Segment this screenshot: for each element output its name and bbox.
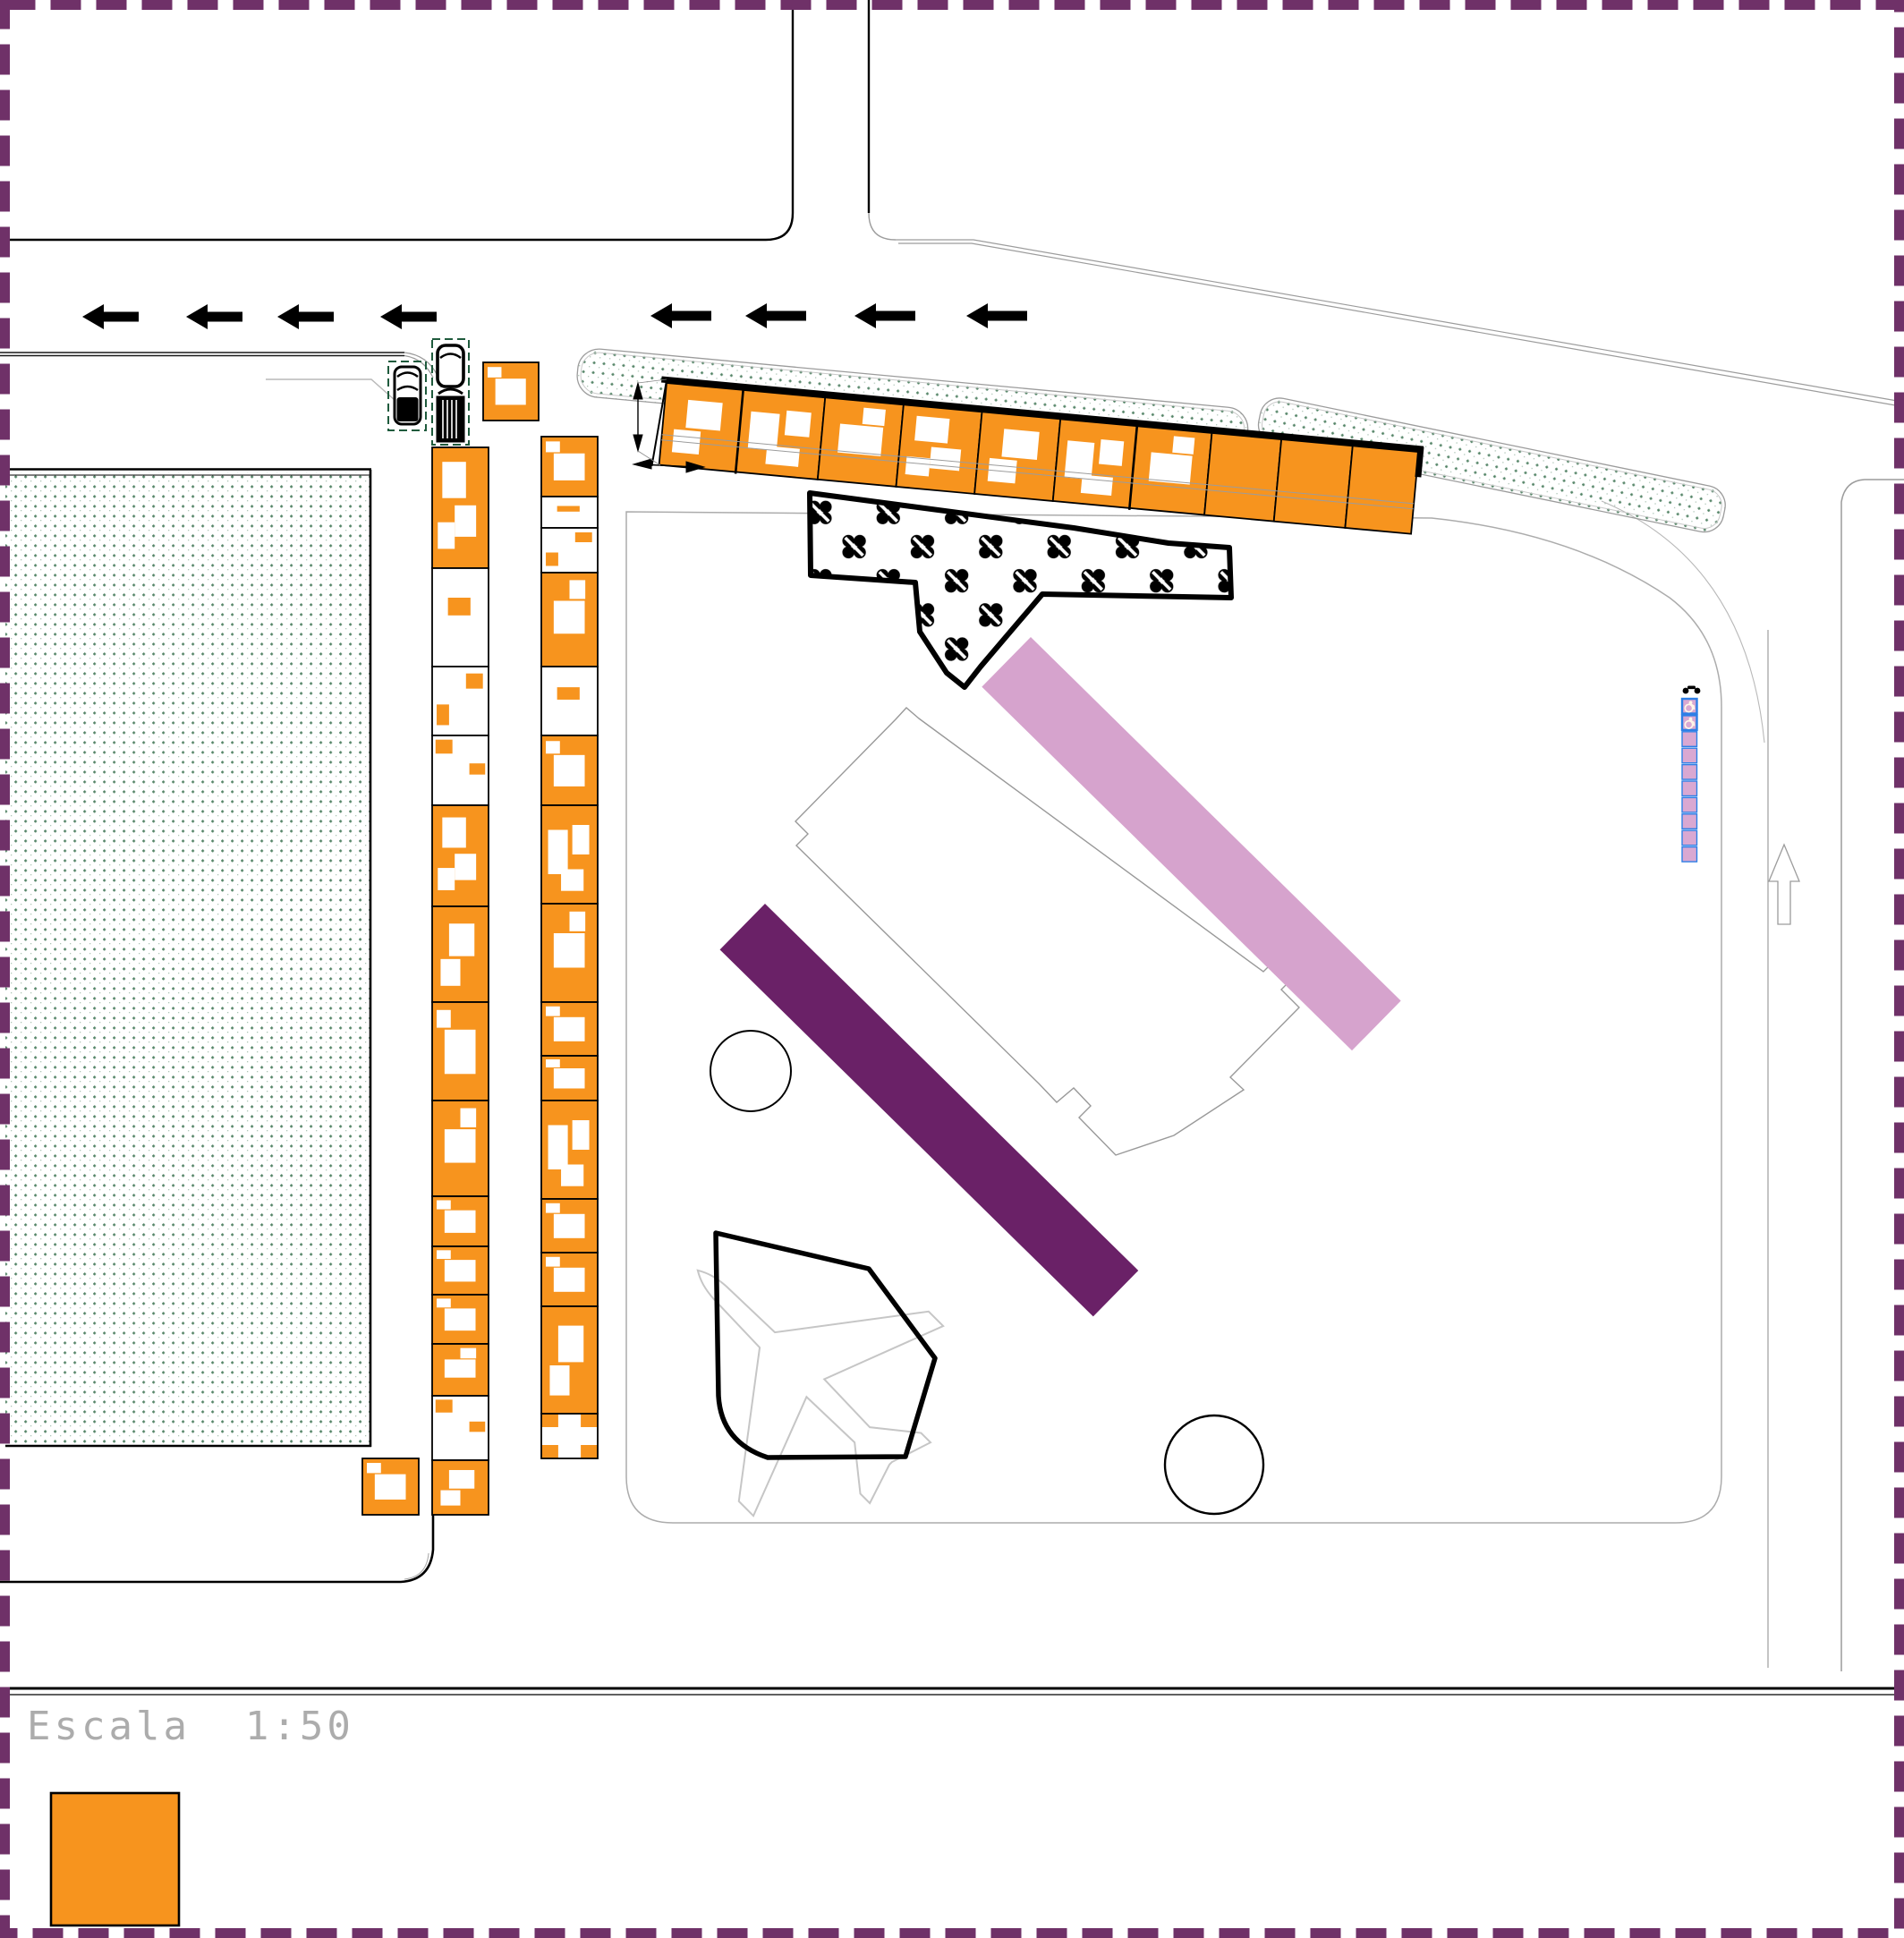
site-plan-page: Escala 1:50 [0,0,1904,1938]
southwest-corner-lines [0,1515,433,1582]
parking-space [1682,748,1697,763]
stall-block [432,805,489,906]
scale-label: Escala 1:50 [27,1704,354,1749]
parking-space [1682,830,1697,846]
stall-block [541,1056,598,1101]
stall-block [818,397,904,487]
market-stalls [362,362,598,1515]
scale-separator [0,1688,1904,1695]
stall-block [432,1396,489,1460]
accessible-parking-space [1682,699,1697,714]
parking-space [1682,814,1697,829]
parking-spaces [1682,699,1697,862]
stall-block [432,667,489,735]
stall-block [432,1246,489,1295]
stall-block [1345,446,1418,533]
stall-block [735,390,825,480]
purple-wing-bar [720,904,1139,1316]
lane-arrow-up [1769,845,1799,924]
truck-icon [432,339,469,445]
stall-block [1053,419,1137,507]
site-plan-canvas: Escala 1:50 [0,0,1904,1938]
plaza-field [2,470,371,1448]
parking-space [1682,781,1697,796]
stall-block [362,1458,419,1515]
stall-block [541,1101,598,1199]
stall-block [1129,426,1211,514]
parking-space [1682,765,1697,780]
left-arrow [380,304,437,329]
parking-space [1682,797,1697,812]
parking-space [1682,847,1697,863]
circle-feature-1 [710,1031,791,1111]
left-arrow [854,303,915,328]
stall-block [659,383,744,472]
stall-block [541,497,598,528]
stall-block [483,362,539,421]
left-arrow [82,304,139,329]
stall-block [432,1460,489,1515]
scooter-icon [1683,686,1701,694]
right-road-edges [1602,480,1904,1671]
circle-feature-2 [1165,1415,1263,1514]
left-arrow [277,304,334,329]
stall-block [541,1253,598,1306]
stall-block [432,568,489,667]
stall-block [541,805,598,904]
stall-block [541,667,598,735]
stall-block [896,404,982,494]
stall-block [541,904,598,1002]
stall-block [432,906,489,1002]
parking-space [1682,732,1697,747]
stall-block [432,1002,489,1101]
stall-block [1204,433,1281,522]
traffic-arrows [82,303,1027,329]
pink-wing-bar [982,637,1400,1050]
stall-block [541,528,598,573]
left-arrow [186,304,242,329]
stall-block [432,447,489,568]
stall-block [541,1002,598,1056]
stall-block [541,1414,598,1458]
stall-block [432,735,489,805]
stall-block [432,1196,489,1246]
stall-block [541,1306,598,1414]
stall-block [541,735,598,805]
car-icon [388,361,426,430]
stall-block [541,573,598,667]
accessible-parking-space [1682,715,1697,730]
stall-block [541,437,598,497]
legend-swatch [51,1793,179,1925]
stall-block [541,1199,598,1253]
stall-block [432,1344,489,1396]
left-arrow [650,303,711,328]
stall-block [974,412,1060,501]
stall-block [1274,439,1353,528]
airplane-zone [603,1176,995,1568]
airplane-icon [603,1176,995,1568]
stall-block [432,1101,489,1196]
left-arrow [966,303,1027,328]
stall-block [432,1295,489,1344]
road-lines [0,0,1902,406]
left-arrow [745,303,806,328]
